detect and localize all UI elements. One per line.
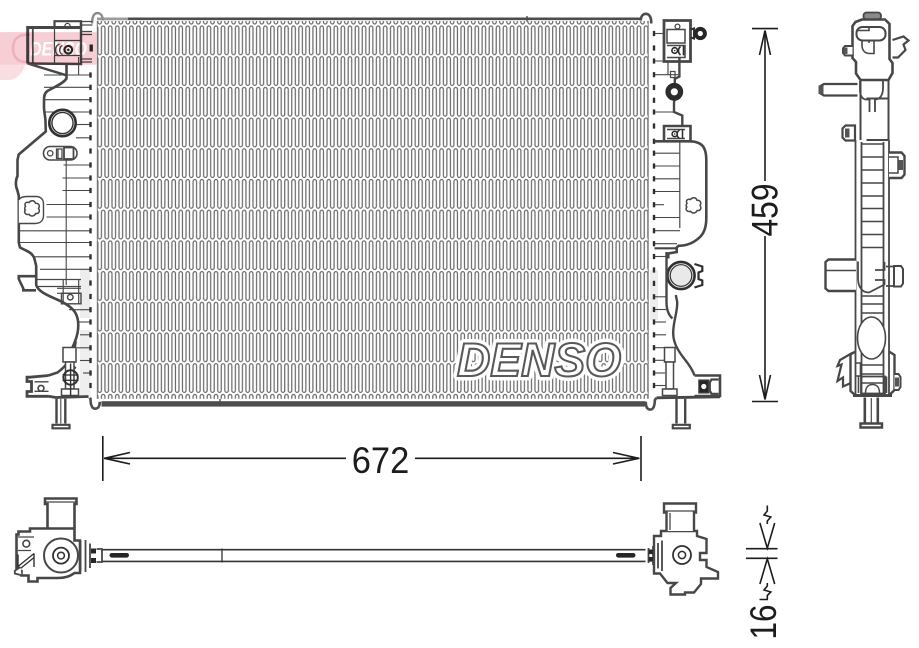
svg-text:16: 16 [743, 605, 784, 640]
svg-text:672: 672 [352, 440, 410, 481]
svg-text:459: 459 [744, 184, 785, 237]
svg-text:DENSO: DENSO [457, 333, 621, 386]
